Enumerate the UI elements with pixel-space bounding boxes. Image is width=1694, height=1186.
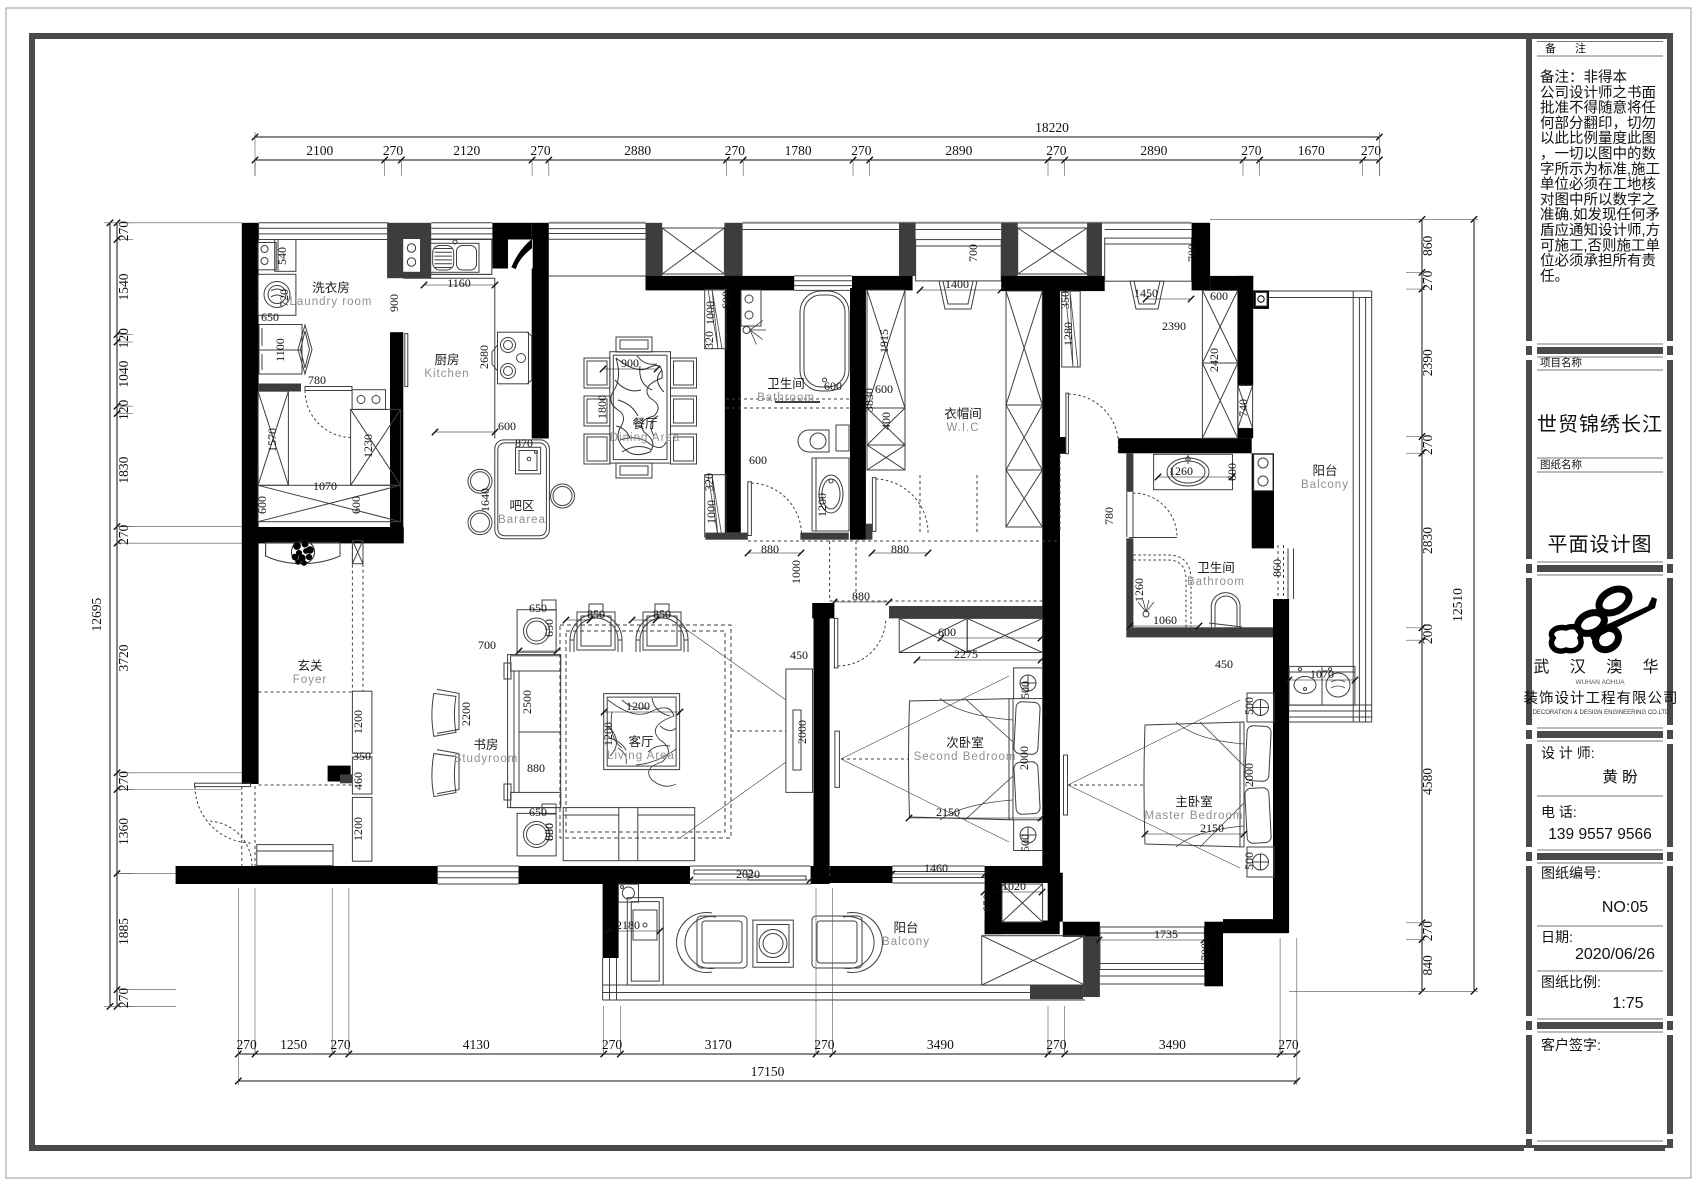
svg-text:武 汉 澳 华: 武 汉 澳 华 xyxy=(1533,658,1666,676)
svg-text:设 计 师:: 设 计 师: xyxy=(1541,745,1595,761)
svg-text:Balcony: Balcony xyxy=(1301,479,1349,491)
svg-text:2500: 2500 xyxy=(520,690,534,714)
svg-text:批准不得随意将任: 批准不得随意将任 xyxy=(1540,99,1656,117)
svg-text:NO:05: NO:05 xyxy=(1602,899,1648,916)
svg-text:Studyroom: Studyroom xyxy=(454,753,519,765)
svg-text:2000: 2000 xyxy=(1242,763,1256,787)
svg-text:860: 860 xyxy=(1420,235,1435,256)
svg-text:客户签字:: 客户签字: xyxy=(1541,1037,1601,1053)
svg-text:1070: 1070 xyxy=(1310,667,1334,681)
svg-text:Bathroom: Bathroom xyxy=(1187,576,1245,588)
svg-text:1460: 1460 xyxy=(924,861,948,875)
svg-text:2150: 2150 xyxy=(1200,821,1224,835)
svg-text:3490: 3490 xyxy=(1159,1037,1186,1052)
svg-text:Bathroom: Bathroom xyxy=(757,392,815,404)
svg-text:卫生间: 卫生间 xyxy=(1197,561,1235,575)
svg-text:电 话:: 电 话: xyxy=(1541,804,1577,820)
svg-text:1200: 1200 xyxy=(626,699,650,713)
svg-text:1250: 1250 xyxy=(280,1037,307,1052)
svg-text:12695: 12695 xyxy=(89,597,104,631)
svg-text:卫生间: 卫生间 xyxy=(767,377,805,391)
svg-text:1000: 1000 xyxy=(789,560,803,584)
svg-text:600: 600 xyxy=(719,291,733,309)
svg-text:850: 850 xyxy=(653,607,671,621)
svg-text:270: 270 xyxy=(1420,921,1435,942)
svg-text:备注：非得本: 备注：非得本 xyxy=(1540,69,1627,86)
svg-text:320: 320 xyxy=(702,331,716,349)
svg-text:备: 备 xyxy=(1545,41,1556,55)
svg-text:200: 200 xyxy=(1420,624,1435,645)
svg-text:1735: 1735 xyxy=(1154,927,1178,941)
svg-text:对图中所以数字之: 对图中所以数字之 xyxy=(1540,191,1656,208)
svg-text:900: 900 xyxy=(621,356,639,370)
svg-text:780: 780 xyxy=(1102,507,1116,525)
svg-text:650: 650 xyxy=(529,601,547,615)
svg-text:衣帽间: 衣帽间 xyxy=(944,406,982,421)
svg-text:1200: 1200 xyxy=(351,817,365,841)
svg-text:洗衣房: 洗衣房 xyxy=(312,280,350,295)
svg-text:2680: 2680 xyxy=(477,345,491,369)
svg-text:4580: 4580 xyxy=(1420,768,1435,795)
svg-text:350: 350 xyxy=(353,749,371,763)
svg-text:270: 270 xyxy=(602,1037,623,1052)
svg-text:2890: 2890 xyxy=(945,143,972,158)
svg-text:1670: 1670 xyxy=(1298,143,1325,158)
svg-text:540: 540 xyxy=(275,247,289,265)
svg-text:900: 900 xyxy=(387,294,401,312)
svg-text:阳台: 阳台 xyxy=(893,920,918,935)
svg-text:准确.如发现任何矛: 准确.如发现任何矛 xyxy=(1540,207,1660,224)
svg-text:日期:: 日期: xyxy=(1541,929,1573,945)
svg-text:1450: 1450 xyxy=(1134,286,1158,300)
svg-text:270: 270 xyxy=(1046,1037,1067,1052)
svg-text:位必须承担所有责: 位必须承担所有责 xyxy=(1540,253,1656,270)
svg-text:何部分翻印，切勿: 何部分翻印，切勿 xyxy=(1540,115,1656,132)
svg-text:3830: 3830 xyxy=(862,388,876,412)
svg-text:图纸编号:: 图纸编号: xyxy=(1541,865,1601,881)
svg-text:1100: 1100 xyxy=(273,338,287,362)
svg-text:1160: 1160 xyxy=(447,276,471,290)
svg-text:270: 270 xyxy=(1420,434,1435,455)
svg-text:650: 650 xyxy=(529,805,547,819)
svg-text:270: 270 xyxy=(1420,270,1435,291)
svg-text:120: 120 xyxy=(116,400,131,421)
svg-text:840: 840 xyxy=(1420,955,1435,976)
svg-text:1230: 1230 xyxy=(361,434,375,458)
svg-text:1200: 1200 xyxy=(815,493,829,517)
svg-text:2390: 2390 xyxy=(1162,319,1186,333)
svg-text:600: 600 xyxy=(875,382,893,396)
svg-text:270: 270 xyxy=(725,143,746,158)
svg-text:350: 350 xyxy=(1058,291,1072,309)
svg-text:主卧室: 主卧室 xyxy=(1175,794,1213,809)
svg-text:2020/06/26: 2020/06/26 xyxy=(1575,946,1655,963)
svg-text:1640: 1640 xyxy=(478,488,492,512)
svg-text:600: 600 xyxy=(1225,463,1239,481)
svg-text:270: 270 xyxy=(530,143,551,158)
svg-text:客厅: 客厅 xyxy=(628,734,653,749)
svg-text:4130: 4130 xyxy=(463,1037,490,1052)
svg-text:1260: 1260 xyxy=(1169,464,1193,478)
svg-text:Master Bedroom: Master Bedroom xyxy=(1144,810,1243,822)
svg-text:700: 700 xyxy=(1185,244,1199,262)
svg-text:Bararea: Bararea xyxy=(498,514,546,526)
svg-text:2830: 2830 xyxy=(1420,527,1435,554)
svg-text:公司设计师之书面: 公司设计师之书面 xyxy=(1540,84,1656,101)
svg-text:780: 780 xyxy=(308,373,326,387)
svg-text:2420: 2420 xyxy=(1207,348,1221,372)
svg-text:，一切以图中的数: ，一切以图中的数 xyxy=(1540,146,1656,163)
svg-text:850: 850 xyxy=(587,607,605,621)
svg-text:1060: 1060 xyxy=(1153,613,1177,627)
svg-text:1280: 1280 xyxy=(1061,322,1075,346)
svg-text:1070: 1070 xyxy=(313,479,337,493)
svg-text:270: 270 xyxy=(1278,1037,1299,1052)
svg-text:880: 880 xyxy=(852,589,870,603)
svg-text:装饰设计工程有限公司: 装饰设计工程有限公司 xyxy=(1524,690,1679,707)
svg-text:139 9557 9566: 139 9557 9566 xyxy=(1548,826,1651,843)
svg-text:Second Bedroom: Second Bedroom xyxy=(914,751,1017,763)
svg-text:图纸名称: 图纸名称 xyxy=(1540,458,1582,471)
svg-text:500: 500 xyxy=(1242,697,1256,715)
svg-text:阳台: 阳台 xyxy=(1312,463,1337,478)
svg-text:2880: 2880 xyxy=(624,143,651,158)
svg-text:世贸锦绣长江: 世贸锦绣长江 xyxy=(1537,413,1663,436)
svg-text:1915: 1915 xyxy=(877,329,891,353)
svg-text:1200: 1200 xyxy=(601,722,615,746)
svg-text:DECORATION & DESIGN ENGINEERIN: DECORATION & DESIGN ENGINEERING CO.LTD xyxy=(1533,710,1670,716)
svg-text:次卧室: 次卧室 xyxy=(946,735,984,750)
svg-text:880: 880 xyxy=(761,542,779,556)
svg-text:12510: 12510 xyxy=(1450,588,1465,622)
svg-text:2200: 2200 xyxy=(459,702,473,726)
svg-text:2000: 2000 xyxy=(795,720,809,744)
svg-text:700: 700 xyxy=(966,244,980,262)
svg-text:400: 400 xyxy=(879,412,893,430)
svg-text:880: 880 xyxy=(527,761,545,775)
svg-text:600: 600 xyxy=(349,496,363,514)
svg-text:Balcony: Balcony xyxy=(882,936,930,948)
svg-text:650: 650 xyxy=(542,823,556,841)
svg-text:2120: 2120 xyxy=(453,143,480,158)
svg-text:270: 270 xyxy=(116,771,131,792)
svg-text:700: 700 xyxy=(1198,943,1212,961)
svg-text:2890: 2890 xyxy=(1140,143,1167,158)
svg-text:Dining Area: Dining Area xyxy=(610,432,680,444)
svg-text:玄关: 玄关 xyxy=(297,658,322,673)
svg-text:以此比例量度此图: 以此比例量度此图 xyxy=(1540,130,1656,147)
svg-text:270: 270 xyxy=(237,1037,258,1052)
svg-text:17150: 17150 xyxy=(751,1064,785,1079)
svg-text:3170: 3170 xyxy=(705,1037,732,1052)
svg-text:2000: 2000 xyxy=(1017,746,1031,770)
svg-text:Living Area: Living Area xyxy=(607,750,675,762)
svg-text:吧区: 吧区 xyxy=(509,499,534,513)
svg-text:270: 270 xyxy=(383,143,404,158)
svg-text:270: 270 xyxy=(1361,143,1382,158)
svg-text:700: 700 xyxy=(478,638,496,652)
svg-text:1040: 1040 xyxy=(116,360,131,387)
svg-text:460: 460 xyxy=(351,772,365,790)
svg-text:500: 500 xyxy=(1242,852,1256,870)
svg-text:注: 注 xyxy=(1575,41,1586,55)
svg-text:黄 盼: 黄 盼 xyxy=(1602,768,1638,786)
svg-text:600: 600 xyxy=(749,453,767,467)
svg-text:单位必须在工地核: 单位必须在工地核 xyxy=(1540,176,1656,193)
svg-text:1800: 1800 xyxy=(595,395,609,419)
svg-text:270: 270 xyxy=(851,143,872,158)
svg-text:1360: 1360 xyxy=(116,818,131,845)
svg-text:600: 600 xyxy=(255,496,269,514)
svg-text:1400: 1400 xyxy=(945,277,969,291)
svg-text:字所示为标准,施工: 字所示为标准,施工 xyxy=(1540,161,1660,178)
svg-text:1570: 1570 xyxy=(265,428,279,452)
svg-text:1260: 1260 xyxy=(1132,578,1146,602)
svg-text:450: 450 xyxy=(790,648,808,662)
svg-text:320: 320 xyxy=(702,473,716,491)
svg-text:Kitchen: Kitchen xyxy=(424,368,469,380)
svg-text:3490: 3490 xyxy=(927,1037,954,1052)
svg-text:650: 650 xyxy=(542,619,556,637)
svg-text:270: 270 xyxy=(1046,143,1067,158)
svg-text:870: 870 xyxy=(515,436,533,450)
svg-text:Laundry room: Laundry room xyxy=(290,296,373,308)
svg-text:可施工,否则施工单: 可施工,否则施工单 xyxy=(1540,237,1660,254)
svg-text:1020: 1020 xyxy=(1002,879,1026,893)
svg-text:740: 740 xyxy=(1236,399,1250,417)
svg-text:450: 450 xyxy=(1215,657,1233,671)
svg-text:18220: 18220 xyxy=(1035,120,1069,135)
svg-text:270: 270 xyxy=(814,1037,835,1052)
svg-text:2180: 2180 xyxy=(616,918,640,932)
svg-text:600: 600 xyxy=(498,419,516,433)
svg-text:书房: 书房 xyxy=(473,737,498,752)
svg-text:270: 270 xyxy=(116,988,131,1009)
svg-text:图纸比例:: 图纸比例: xyxy=(1541,974,1601,990)
svg-text:2020: 2020 xyxy=(736,867,760,881)
svg-text:1000: 1000 xyxy=(704,500,718,524)
svg-text:270: 270 xyxy=(1241,143,1262,158)
svg-text:1885: 1885 xyxy=(116,918,131,945)
svg-text:860: 860 xyxy=(1270,559,1284,577)
svg-text:600: 600 xyxy=(824,379,842,393)
svg-text:650: 650 xyxy=(980,894,994,912)
svg-text:1:75: 1:75 xyxy=(1612,995,1643,1012)
svg-text:600: 600 xyxy=(938,625,956,639)
svg-text:650: 650 xyxy=(261,310,279,324)
svg-text:1000: 1000 xyxy=(703,301,717,325)
svg-text:Foyer: Foyer xyxy=(293,674,327,686)
svg-text:2150: 2150 xyxy=(936,805,960,819)
svg-text:500: 500 xyxy=(1018,834,1032,852)
svg-text:270: 270 xyxy=(116,221,131,242)
svg-text:厨房: 厨房 xyxy=(434,352,459,367)
svg-text:盾应通知设计师,方: 盾应通知设计师,方 xyxy=(1540,221,1660,239)
svg-text:600: 600 xyxy=(1210,289,1228,303)
svg-text:平面设计图: 平面设计图 xyxy=(1548,533,1653,556)
svg-text:项目名称: 项目名称 xyxy=(1540,356,1582,369)
svg-text:任。: 任。 xyxy=(1540,268,1569,285)
svg-text:120: 120 xyxy=(116,328,131,349)
svg-text:3720: 3720 xyxy=(116,644,131,671)
svg-text:270: 270 xyxy=(116,525,131,546)
svg-text:W.I.C: W.I.C xyxy=(946,422,979,434)
svg-text:2100: 2100 xyxy=(306,143,333,158)
svg-text:1830: 1830 xyxy=(116,456,131,483)
svg-text:1200: 1200 xyxy=(351,710,365,734)
svg-text:餐厅: 餐厅 xyxy=(632,416,657,431)
svg-text:500: 500 xyxy=(1018,681,1032,699)
svg-text:2390: 2390 xyxy=(1420,349,1435,376)
svg-text:1540: 1540 xyxy=(116,273,131,300)
svg-text:270: 270 xyxy=(330,1037,351,1052)
svg-text:880: 880 xyxy=(891,542,909,556)
svg-text:1780: 1780 xyxy=(785,143,812,158)
svg-text:2275: 2275 xyxy=(954,647,978,661)
svg-text:WUHAN AOHUA: WUHAN AOHUA xyxy=(1575,679,1625,686)
